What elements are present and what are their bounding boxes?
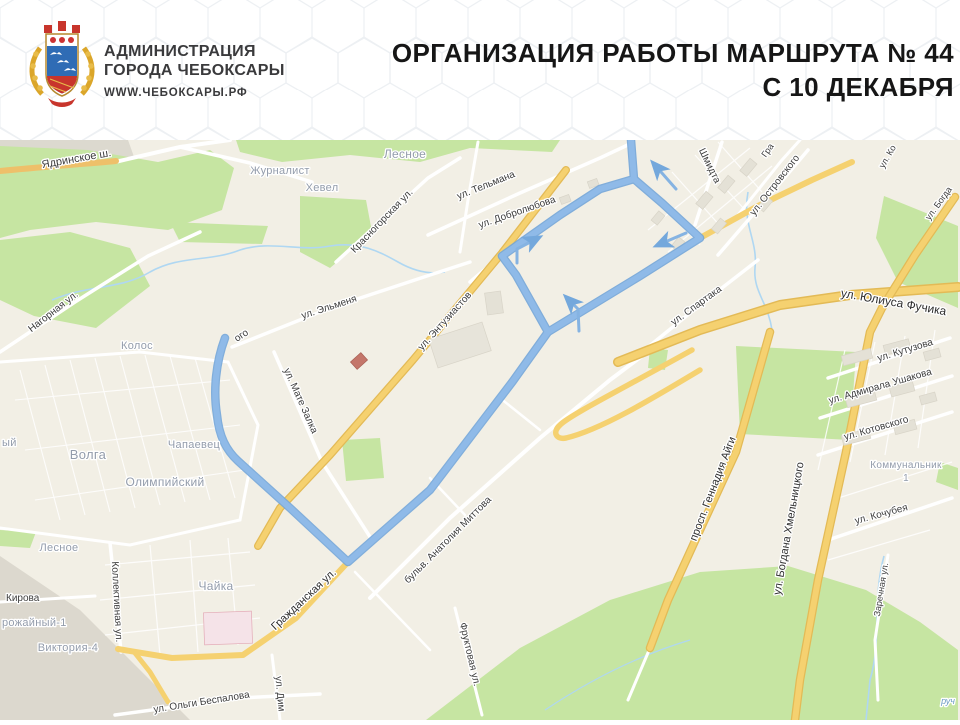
district-label: Журналист bbox=[250, 165, 310, 177]
district-label: Хевел bbox=[306, 182, 339, 194]
district-label: ый bbox=[2, 437, 17, 449]
district-label: Колос bbox=[121, 340, 153, 352]
map-canvas: Ядринское ш.Нагорная ул.Красногорская ул… bbox=[0, 140, 960, 720]
district-label: Олимпийский bbox=[125, 475, 204, 489]
district-label: Лесное bbox=[384, 147, 426, 161]
district-label: рожайный-1 bbox=[2, 617, 67, 629]
water-label: руч bbox=[940, 696, 955, 706]
district-label: Коммунальник bbox=[870, 460, 942, 471]
cheboksary-coat-of-arms bbox=[26, 18, 98, 110]
org-line-1: АДМИНИСТРАЦИЯ bbox=[104, 42, 285, 61]
street-label: Кирова bbox=[6, 593, 40, 604]
slide-title: ОРГАНИЗАЦИЯ РАБОТЫ МАРШРУТА № 44 С 10 ДЕ… bbox=[304, 36, 954, 104]
district-label: Виктория-4 bbox=[38, 642, 98, 654]
organization-name: АДМИНИСТРАЦИЯ ГОРОДА ЧЕБОКСАРЫ WWW.ЧЕБОК… bbox=[104, 42, 285, 99]
district-label: 1 bbox=[903, 473, 909, 484]
district-label: Волга bbox=[70, 447, 107, 462]
title-line-2: С 10 ДЕКАБРЯ bbox=[304, 70, 954, 104]
slide-header: АДМИНИСТРАЦИЯ ГОРОДА ЧЕБОКСАРЫ WWW.ЧЕБОК… bbox=[0, 0, 960, 140]
org-line-2: ГОРОДА ЧЕБОКСАРЫ bbox=[104, 61, 285, 80]
district-label: Чапаевец bbox=[168, 439, 221, 451]
org-website: WWW.ЧЕБОКСАРЫ.РФ bbox=[104, 87, 285, 99]
district-label: Лесное bbox=[40, 542, 79, 554]
title-line-1: ОРГАНИЗАЦИЯ РАБОТЫ МАРШРУТА № 44 bbox=[304, 36, 954, 70]
district-label: Чайка bbox=[198, 579, 233, 593]
route-map: Ядринское ш.Нагорная ул.Красногорская ул… bbox=[0, 140, 960, 720]
